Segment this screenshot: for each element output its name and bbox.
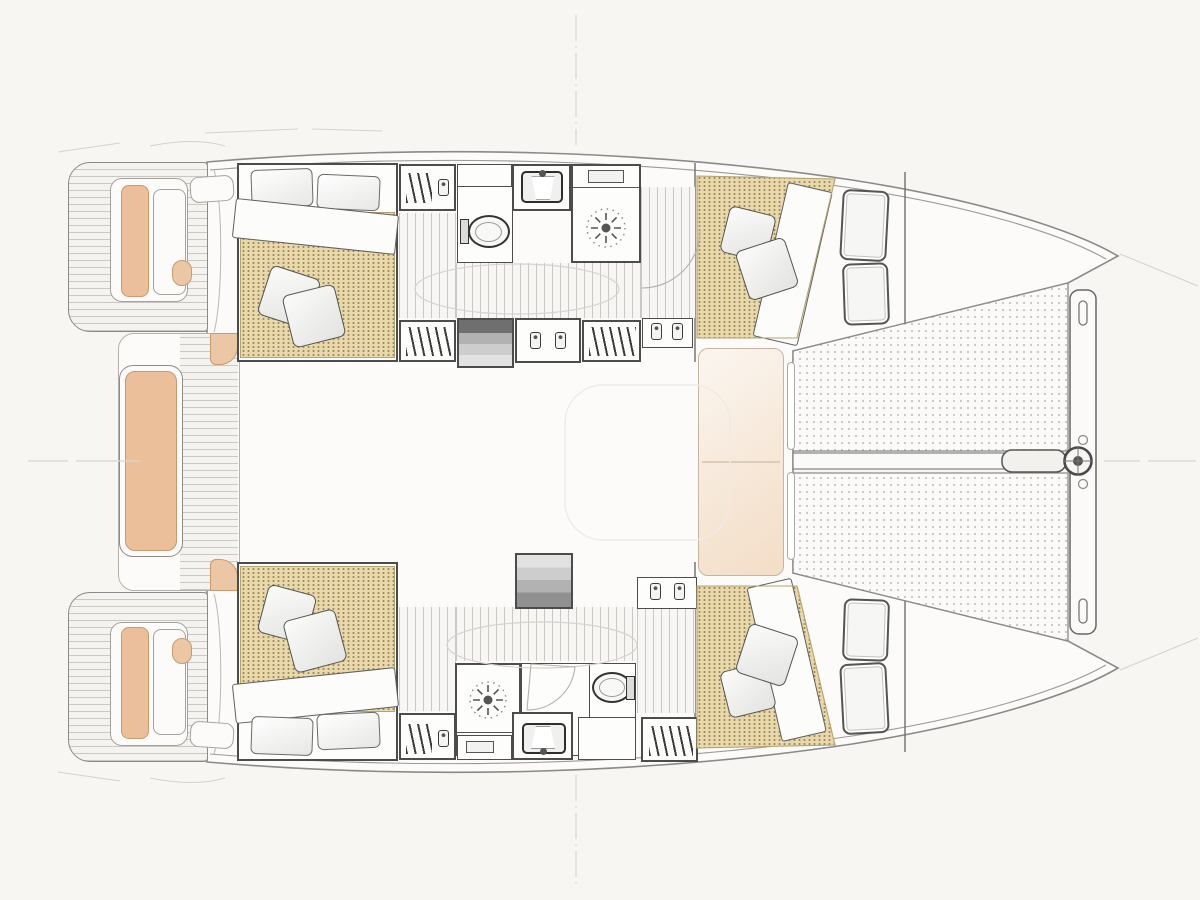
- jar-icon: [438, 730, 449, 747]
- pillow: [316, 174, 380, 212]
- corridor-port-aft: [399, 213, 456, 318]
- companionway-port: [457, 318, 514, 368]
- jar-icon: [530, 332, 541, 349]
- anchor-roller-icon: [1064, 447, 1092, 475]
- stern-seat-port: [121, 185, 149, 297]
- foredeck-step: [787, 362, 795, 450]
- berth-cushion: [839, 189, 890, 262]
- berth-cushion: [842, 262, 890, 326]
- sidedeck-pad-port: [172, 260, 192, 286]
- jar-icon: [674, 583, 685, 600]
- jar-icon: [650, 583, 661, 600]
- jar-icon: [672, 323, 683, 340]
- shower-port: [571, 164, 641, 263]
- corridor-stbd-fwd: [637, 607, 695, 713]
- shower-shelf-row: [573, 166, 639, 188]
- locker-port-jars: [515, 318, 581, 363]
- wardrobe-stbd-1: [399, 713, 456, 760]
- helm-pad-port: [189, 174, 235, 203]
- toilet-room-port: [457, 186, 513, 263]
- jar-icon: [555, 332, 566, 349]
- hangers-icon: [406, 724, 432, 754]
- hangers-icon: [406, 173, 432, 203]
- corridor-stbd-aft: [399, 607, 456, 711]
- corridor-stbd: [456, 607, 636, 661]
- berth-cushion: [839, 662, 890, 735]
- aft-cockpit-bench-cushion: [125, 371, 177, 551]
- companionway-starboard: [515, 553, 573, 609]
- cabinet-starboard: [578, 717, 636, 760]
- toilet-tank: [460, 219, 469, 244]
- hangers-icon: [589, 327, 636, 356]
- corridor-port-fwd: [641, 187, 695, 318]
- jar-icon: [438, 179, 449, 196]
- foredeck-step: [787, 472, 795, 560]
- wardrobe-stbd-2: [641, 717, 698, 762]
- corridor-port: [456, 263, 641, 318]
- hangers-icon: [406, 327, 451, 356]
- pillow: [316, 712, 381, 751]
- berth-cushion: [842, 598, 890, 662]
- wardrobe-port-2: [399, 320, 456, 362]
- hangers-icon: [649, 726, 693, 756]
- cockpit-teak: [180, 334, 238, 590]
- pillow: [250, 716, 313, 756]
- trampoline-spine: [793, 453, 1005, 469]
- wardrobe-port-1: [399, 164, 456, 211]
- jar-icon: [651, 323, 662, 340]
- toilet-room-starboard: [589, 663, 636, 724]
- sidedeck-pad-starboard: [172, 638, 192, 664]
- stern-seat-starboard: [121, 627, 149, 739]
- sink-unit-starboard: [512, 712, 573, 760]
- catamaran-floorplan: [0, 0, 1200, 900]
- helm-pad-starboard: [189, 720, 235, 749]
- locker-stbd-jars: [637, 577, 697, 609]
- toilet-tank: [626, 676, 635, 700]
- sink-icon: [521, 171, 563, 203]
- bowsprit-rod: [1002, 450, 1066, 472]
- sink-unit-port: [512, 164, 571, 211]
- locker-port-jars-2: [642, 318, 693, 348]
- vanity-starboard: [457, 735, 512, 760]
- wardrobe-port-3: [582, 320, 641, 362]
- toilet-icon: [468, 215, 510, 248]
- sink-icon: [522, 723, 566, 754]
- foredeck-sunpad: [698, 348, 784, 576]
